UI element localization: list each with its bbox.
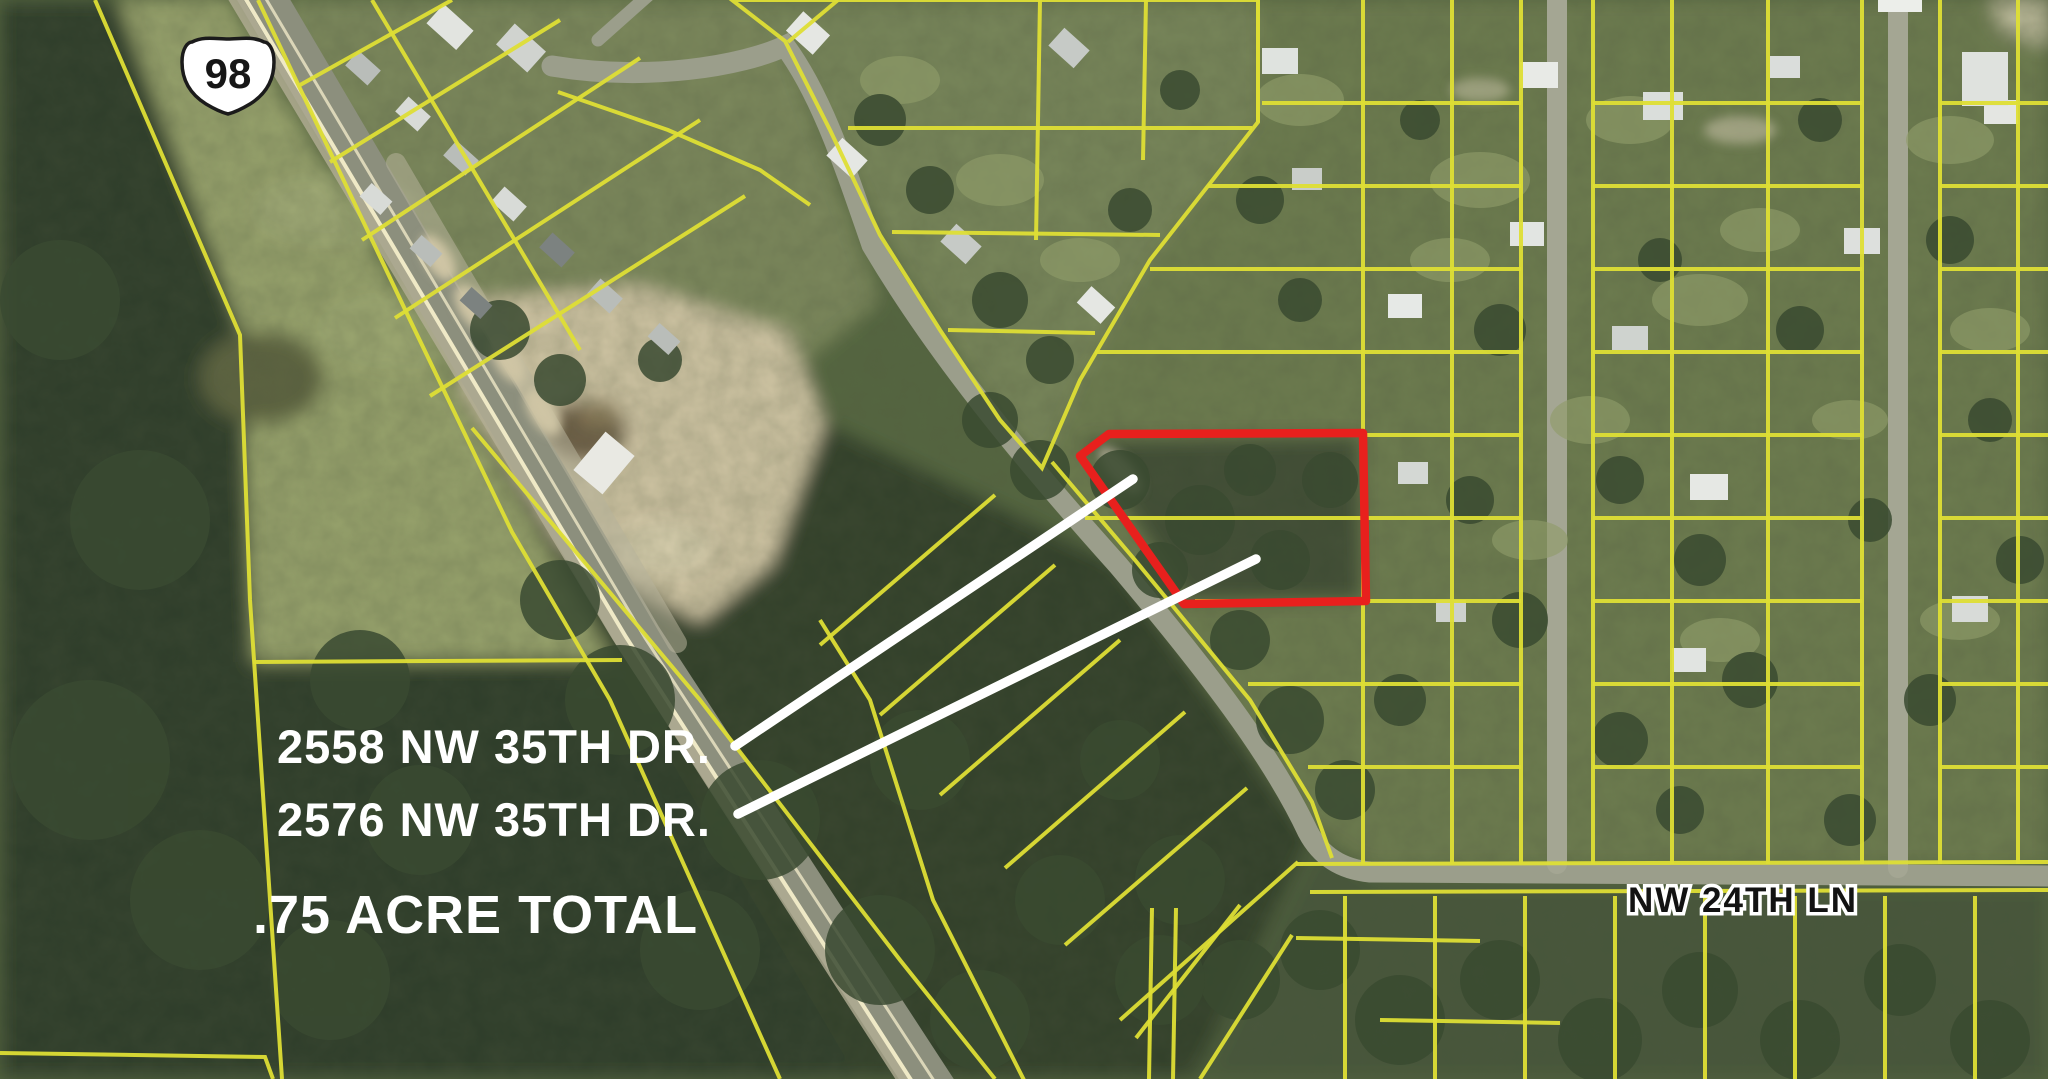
acreage-label: .75 ACRE TOTAL	[253, 885, 698, 945]
address-label-2558: 2558 NW 35TH DR.	[277, 720, 711, 773]
aerial-map-canvas: 2558 NW 35TH DR. 2576 NW 35TH DR. .75 AC…	[0, 0, 2048, 1079]
aerial-map: 2558 NW 35TH DR. 2576 NW 35TH DR. .75 AC…	[0, 0, 2048, 1079]
address-label-2576: 2576 NW 35TH DR.	[277, 793, 711, 846]
street-label-nw-24th-ln: NW 24TH LN	[1628, 881, 1858, 920]
shield-route-number: 98	[205, 50, 252, 97]
